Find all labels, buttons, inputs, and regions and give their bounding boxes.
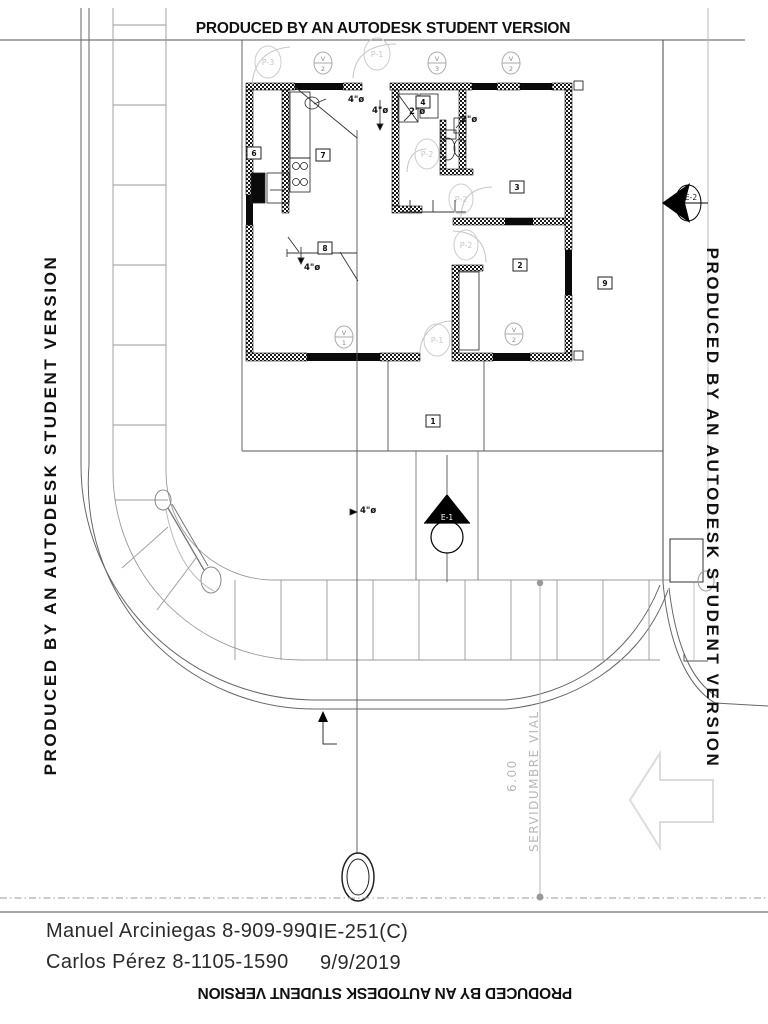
svg-text:P-1: P-1 <box>371 50 384 59</box>
svg-text:9: 9 <box>602 279 607 288</box>
room-label: 8 <box>318 242 332 254</box>
titleblock-author1: Manuel Arciniegas 8-909-990 <box>46 920 317 943</box>
door-tag: P-1 <box>424 324 450 356</box>
svg-text:2: 2 <box>321 65 325 73</box>
svg-text:P-2: P-2 <box>421 150 434 159</box>
svg-text:7: 7 <box>320 151 325 160</box>
flow-arrow <box>318 711 337 744</box>
corner-manholes <box>155 490 221 593</box>
section-e2-label: E-2 <box>685 193 697 202</box>
columns <box>574 81 583 360</box>
pipe-label: 4"ø <box>304 263 320 273</box>
watermark-left: PRODUCED BY AN AUTODESK STUDENT VERSION <box>41 255 61 776</box>
svg-text:1: 1 <box>430 417 435 426</box>
svg-text:3: 3 <box>435 65 439 73</box>
vent-marker: V 2 <box>502 52 520 74</box>
fridge <box>251 173 265 203</box>
svg-text:V: V <box>321 55 326 63</box>
easement-label: SERVIDUMBRE VIAL <box>527 710 541 852</box>
vent-marker: V 3 <box>428 52 446 74</box>
vent-marker: V 2 <box>314 52 332 74</box>
svg-text:2: 2 <box>517 261 522 270</box>
section-marker-e2: E-2 <box>662 183 708 223</box>
cad-sheet: 6.00 SERVIDUMBRE VIAL E-2 E-1 V 2 V 3 V <box>0 0 768 1024</box>
pipe-label: 2"ø <box>409 107 425 117</box>
titleblock-author2: Carlos Pérez 8-1105-1590 <box>46 951 289 974</box>
room-label: 9 <box>598 277 612 289</box>
svg-text:3: 3 <box>514 183 519 192</box>
svg-text:P-1: P-1 <box>431 336 444 345</box>
watermark-bottom: PRODUCED BY AN AUTODESK STUDENT VERSION <box>198 983 573 1001</box>
room-label: 7 <box>316 149 330 161</box>
vent-marker: V 1 <box>335 326 353 348</box>
svg-text:2: 2 <box>512 336 516 344</box>
door-tag: P-2 <box>454 230 478 260</box>
svg-text:P-3: P-3 <box>262 58 275 67</box>
plumbing-lines <box>287 87 466 853</box>
room-label: 3 <box>510 181 524 193</box>
svg-text:1: 1 <box>342 339 346 347</box>
svg-text:4: 4 <box>420 98 425 107</box>
room-label: 1 <box>426 415 440 427</box>
site-plan-drawing: 6.00 SERVIDUMBRE VIAL E-2 E-1 V 2 V 3 V <box>0 0 768 1024</box>
pipe-label: 4"ø <box>348 95 364 105</box>
titleblock-course: IIE-251(C) <box>312 921 408 944</box>
svg-text:V: V <box>509 55 514 63</box>
section-e1-label: E-1 <box>441 513 453 522</box>
section-marker-e1: E-1 <box>424 494 470 553</box>
room-label: 6 <box>247 147 261 159</box>
svg-text:V: V <box>512 326 517 334</box>
pipe-label: 4"ø <box>360 506 376 516</box>
door-tag: P-2 <box>449 184 473 214</box>
door-tag: P-1 <box>364 38 390 70</box>
svg-text:6: 6 <box>251 149 256 158</box>
window-segments <box>246 83 572 361</box>
titleblock-date: 9/9/2019 <box>320 952 401 975</box>
pipe-label: 2"ø <box>461 115 477 125</box>
svg-text:V: V <box>342 329 347 337</box>
watermark-top: PRODUCED BY AN AUTODESK STUDENT VERSION <box>196 20 571 38</box>
vent-marker: V 2 <box>505 323 523 345</box>
room-label: 2 <box>513 259 527 271</box>
svg-text:8: 8 <box>322 244 327 253</box>
closet <box>459 272 479 350</box>
svg-text:P-2: P-2 <box>460 241 473 250</box>
pipe-label: 4"ø <box>372 106 388 116</box>
svg-text:V: V <box>435 55 440 63</box>
watermark-right: PRODUCED BY AN AUTODESK STUDENT VERSION <box>702 248 722 769</box>
svg-text:P-2: P-2 <box>455 195 468 204</box>
manhole <box>342 853 374 901</box>
svg-text:2: 2 <box>509 65 513 73</box>
direction-arrow <box>630 753 713 848</box>
easement-dim-label: 6.00 <box>505 759 519 792</box>
door-tag: P-2 <box>415 139 439 169</box>
